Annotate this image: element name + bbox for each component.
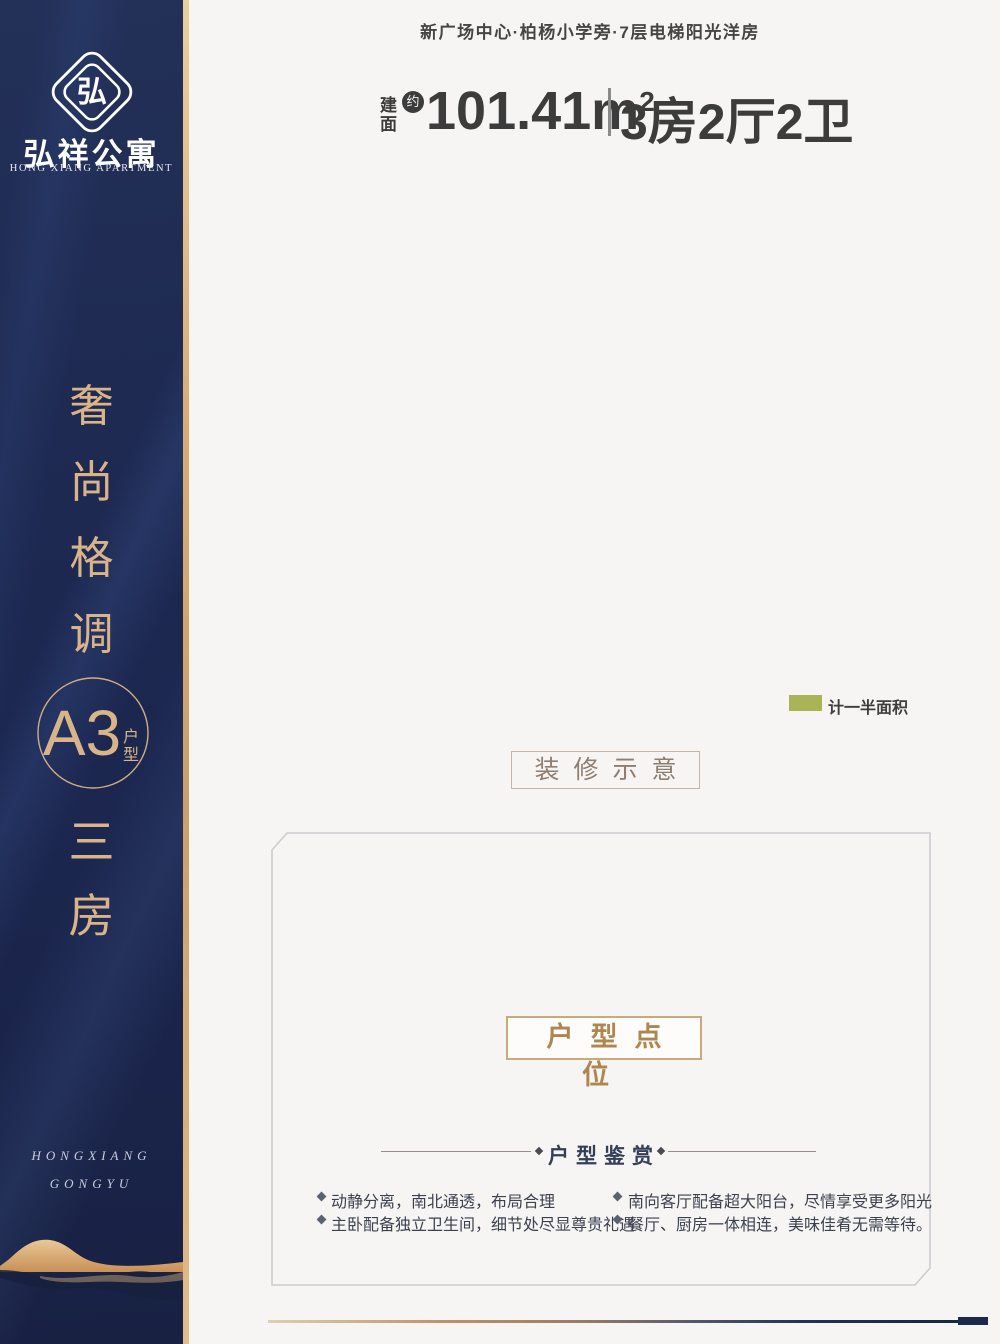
- svg-text:A3: A3: [43, 697, 121, 769]
- svg-text:型: 型: [123, 746, 139, 764]
- svg-text:户: 户: [123, 728, 139, 746]
- svg-text:弘: 弘: [77, 76, 107, 109]
